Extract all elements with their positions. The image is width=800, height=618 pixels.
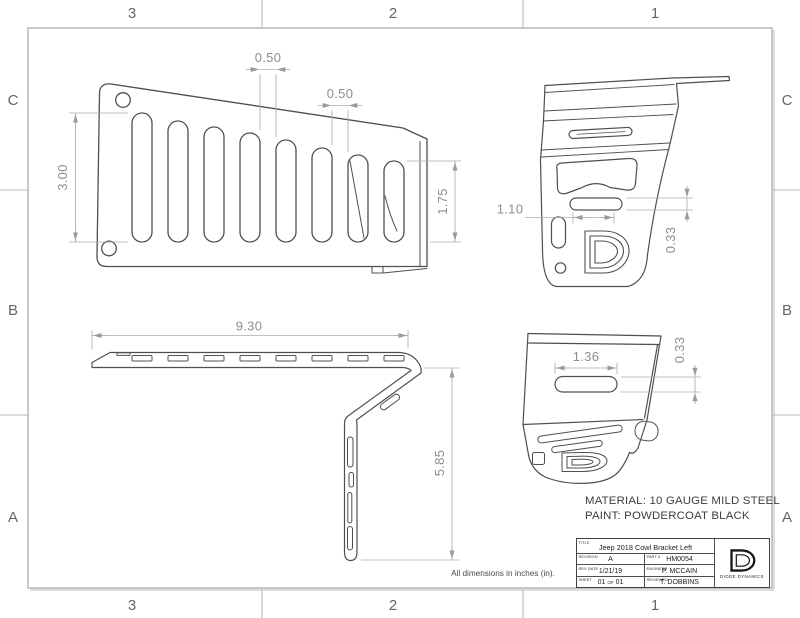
diode-dynamics-logo — [728, 548, 756, 573]
sheet-cell: SHEET 01 OF 01 — [577, 576, 644, 588]
dim-side-slot-width: 1.10 — [497, 202, 524, 217]
dim-slot-height-left: 3.00 — [55, 164, 70, 191]
paint-line: PAINT: POWDERCOAT BLACK — [585, 509, 780, 524]
mount-hole-top — [116, 93, 131, 108]
top-tab — [673, 77, 730, 84]
sheet-of: OF — [607, 580, 613, 585]
title-block: TITLE Jeep 2018 Cowl Bracket Left DIODE … — [576, 538, 770, 588]
zone-row-right-b: B — [782, 302, 792, 319]
sheet-total: 01 — [616, 579, 624, 586]
dim-slot-height-right: 1.75 — [435, 188, 450, 215]
dim-rear-slot-width: 1.36 — [573, 349, 600, 364]
flange-slot — [569, 127, 632, 139]
sheet-current: 01 — [598, 579, 606, 586]
diode-logo-emboss — [585, 231, 629, 273]
large-cutout — [557, 158, 637, 193]
dim-rear-slot-height: 0.33 — [672, 337, 687, 364]
rev-date-value: 1/21/19 — [599, 568, 622, 575]
dimensioned-slot-rear — [555, 377, 617, 393]
zone-col-top-3: 3 — [128, 5, 136, 22]
zone-row-right-c: C — [782, 92, 793, 109]
reviewed-cell: REVIEWED T. DOBBINS — [644, 576, 714, 588]
company-name: DIODE DYNAMICS — [720, 574, 764, 579]
dim-side-slot-height: 0.33 — [663, 227, 678, 254]
material-note: MATERIAL: 10 GAUGE MILD STEEL PAINT: POW… — [585, 494, 780, 524]
drawing-title: Jeep 2018 Cowl Bracket Left — [599, 543, 692, 552]
zone-row-left-a: A — [8, 509, 18, 526]
vertical-slot — [552, 217, 566, 248]
dim-drop-height: 5.85 — [432, 450, 447, 477]
rev-date-label: REV DATE — [579, 566, 599, 571]
sheet-label: SHEET — [579, 577, 592, 582]
front-view — [97, 84, 427, 273]
zone-col-bottom-3: 3 — [128, 597, 136, 614]
revision-value: A — [608, 556, 613, 563]
zone-col-top-2: 2 — [389, 5, 397, 22]
zone-row-right-a: A — [782, 509, 792, 526]
units-note: All dimensions in inches (in). — [428, 569, 578, 578]
dimension-lines — [69, 70, 701, 561]
top-view — [92, 353, 421, 561]
reviewed-label: REVIEWED — [647, 577, 668, 582]
title-cell: TITLE Jeep 2018 Cowl Bracket Left — [577, 539, 714, 553]
part-number-value: HM0054 — [666, 556, 692, 563]
dim-slot-gap1: 0.50 — [255, 50, 282, 65]
revision-label: REVISION — [579, 554, 598, 559]
side-view — [541, 77, 730, 287]
engineer-cell: ENGINEER P. MCCAIN — [644, 564, 714, 576]
part-number-label: PART # — [647, 554, 661, 559]
zone-col-bottom-2: 2 — [389, 597, 397, 614]
zone-row-left-c: C — [8, 92, 19, 109]
zone-col-top-1: 1 — [651, 5, 659, 22]
diode-logo-emboss-rear — [562, 452, 607, 471]
mount-hole-bottom — [102, 241, 117, 256]
revision-cell: REVISION A — [577, 553, 644, 565]
small-hole — [555, 263, 565, 273]
dim-overall-length: 9.30 — [236, 319, 263, 334]
dimensioned-slot — [570, 198, 622, 210]
part-number-cell: PART # HM0054 — [644, 553, 714, 565]
leg-features — [348, 437, 354, 550]
zone-col-bottom-1: 1 — [651, 597, 659, 614]
sheet-value: 01 OF 01 — [598, 579, 624, 586]
title-label: TITLE — [579, 540, 590, 545]
drawing-canvas: 3 2 1 3 2 1 C B A C B A — [0, 0, 800, 618]
dim-slot-gap2: 0.50 — [327, 86, 354, 101]
drawing-sheet: 3 2 1 3 2 1 C B A C B A — [0, 0, 800, 618]
zone-row-left-b: B — [8, 302, 18, 319]
dimension-labels: 0.50 0.50 3.00 1.75 1.10 0.33 9.30 5.85 … — [55, 50, 687, 476]
company-logo-cell: DIODE DYNAMICS — [714, 539, 769, 587]
vent-slots — [132, 113, 404, 242]
material-line: MATERIAL: 10 GAUGE MILD STEEL — [585, 494, 780, 509]
engineer-label: ENGINEER — [647, 566, 668, 571]
slot-edges — [117, 353, 404, 361]
rev-date-cell: REV DATE 1/21/19 — [577, 564, 644, 576]
